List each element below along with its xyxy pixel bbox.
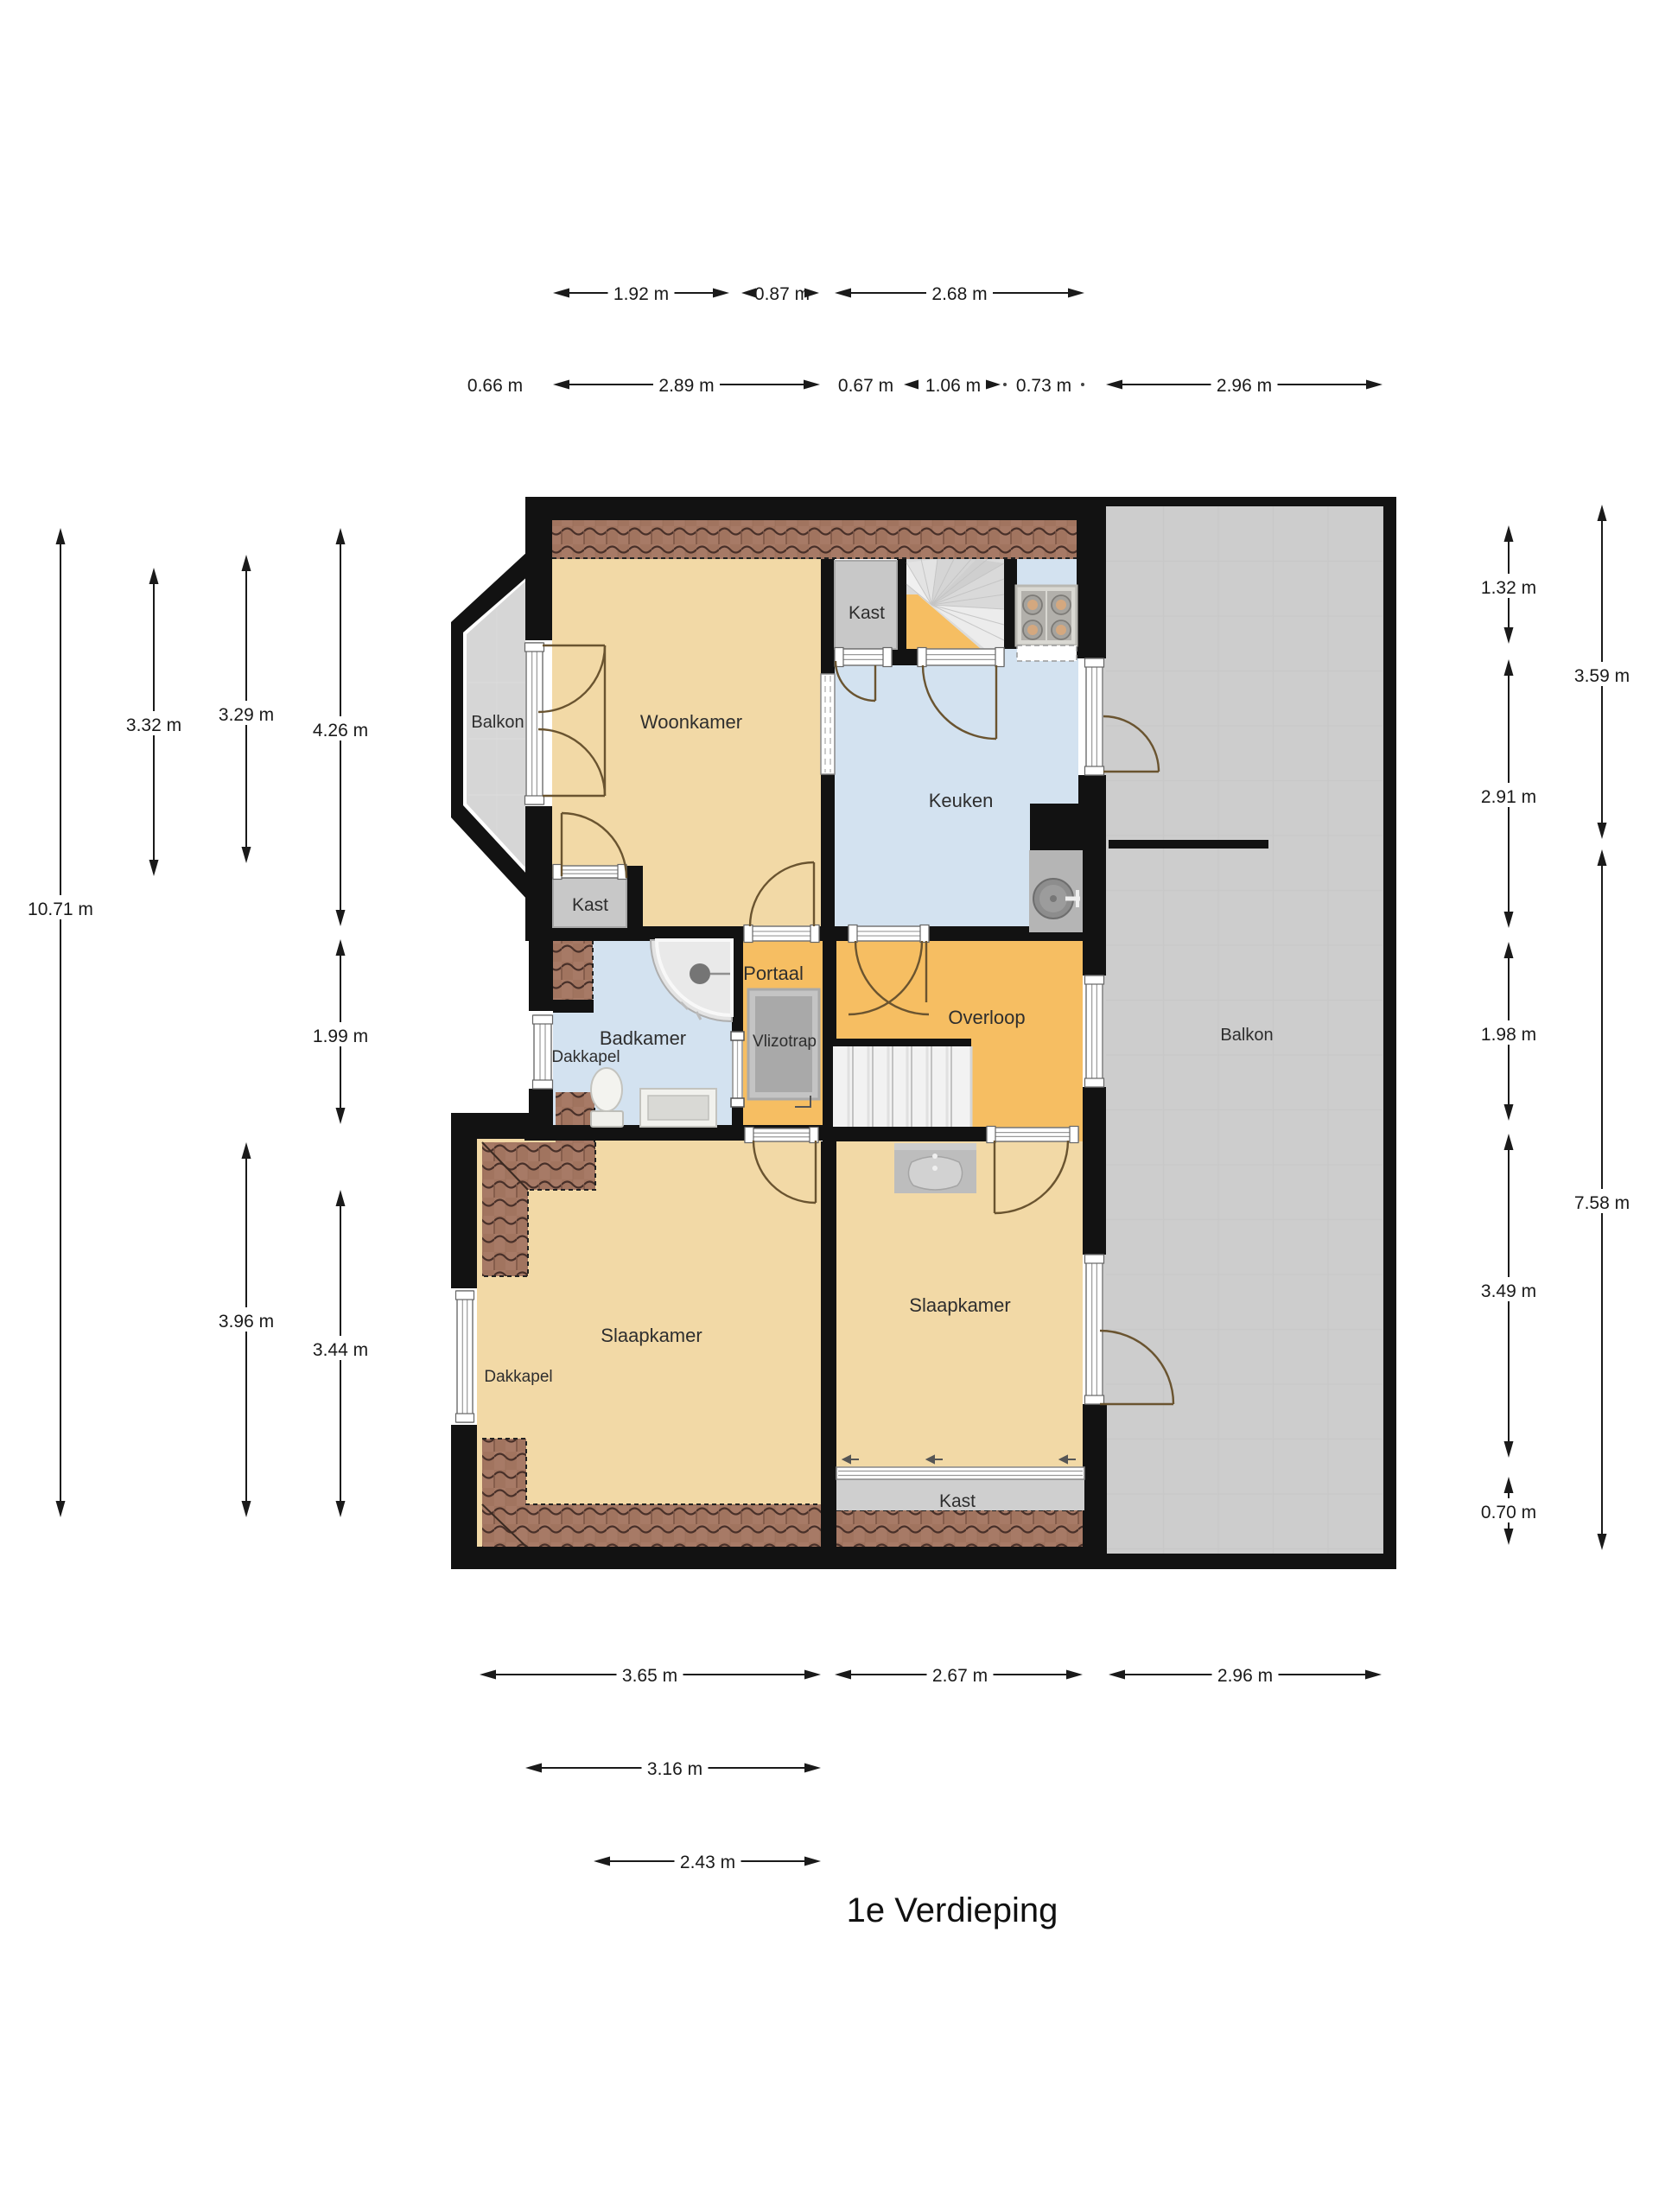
svg-text:0.66 m: 0.66 m bbox=[467, 376, 523, 396]
svg-text:1.92 m: 1.92 m bbox=[613, 284, 669, 304]
svg-text:1.98 m: 1.98 m bbox=[1481, 1025, 1536, 1045]
svg-text:1.32 m: 1.32 m bbox=[1481, 578, 1536, 598]
svg-text:Dakkapel: Dakkapel bbox=[551, 1048, 620, 1066]
svg-text:Balkon: Balkon bbox=[1220, 1026, 1273, 1045]
svg-text:2.96 m: 2.96 m bbox=[1217, 1666, 1273, 1686]
svg-text:10.71 m: 10.71 m bbox=[28, 899, 93, 919]
svg-text:Badkamer: Badkamer bbox=[600, 1027, 686, 1049]
svg-text:Overloop: Overloop bbox=[948, 1007, 1025, 1028]
svg-text:Portaal: Portaal bbox=[743, 963, 804, 984]
svg-text:Dakkapel: Dakkapel bbox=[484, 1368, 552, 1386]
svg-text:0.67 m: 0.67 m bbox=[838, 376, 893, 396]
svg-text:1.06 m: 1.06 m bbox=[925, 376, 981, 396]
svg-text:3.32 m: 3.32 m bbox=[126, 715, 181, 735]
svg-text:0.70 m: 0.70 m bbox=[1481, 1503, 1536, 1522]
svg-text:3.59 m: 3.59 m bbox=[1574, 666, 1630, 686]
svg-text:7.58 m: 7.58 m bbox=[1574, 1193, 1630, 1213]
svg-text:Kast: Kast bbox=[849, 603, 885, 623]
svg-text:2.68 m: 2.68 m bbox=[931, 284, 987, 304]
svg-text:Slaapkamer: Slaapkamer bbox=[909, 1294, 1010, 1316]
svg-text:0.73 m: 0.73 m bbox=[1016, 376, 1071, 396]
svg-text:2.43 m: 2.43 m bbox=[680, 1853, 735, 1872]
svg-text:Slaapkamer: Slaapkamer bbox=[601, 1325, 702, 1346]
svg-text:2.89 m: 2.89 m bbox=[658, 376, 714, 396]
svg-text:Balkon: Balkon bbox=[471, 713, 524, 732]
svg-text:2.96 m: 2.96 m bbox=[1217, 376, 1272, 396]
svg-text:4.26 m: 4.26 m bbox=[313, 721, 368, 741]
svg-text:Keuken: Keuken bbox=[929, 790, 994, 811]
svg-text:Woonkamer: Woonkamer bbox=[640, 711, 742, 733]
svg-text:3.65 m: 3.65 m bbox=[622, 1666, 677, 1686]
svg-text:2.67 m: 2.67 m bbox=[932, 1666, 988, 1686]
svg-text:Kast: Kast bbox=[939, 1491, 976, 1511]
svg-text:3.96 m: 3.96 m bbox=[219, 1312, 274, 1332]
svg-text:Vlizotrap: Vlizotrap bbox=[753, 1033, 817, 1051]
svg-text:3.49 m: 3.49 m bbox=[1481, 1281, 1536, 1301]
svg-text:3.16 m: 3.16 m bbox=[647, 1759, 702, 1779]
svg-text:2.91 m: 2.91 m bbox=[1481, 787, 1536, 807]
svg-text:0.87 m: 0.87 m bbox=[754, 284, 810, 304]
svg-text:3.29 m: 3.29 m bbox=[219, 705, 274, 725]
svg-text:Kast: Kast bbox=[572, 895, 608, 915]
svg-text:3.44 m: 3.44 m bbox=[313, 1340, 368, 1360]
svg-text:1e Verdieping: 1e Verdieping bbox=[847, 1891, 1058, 1929]
svg-text:1.99 m: 1.99 m bbox=[313, 1027, 368, 1046]
